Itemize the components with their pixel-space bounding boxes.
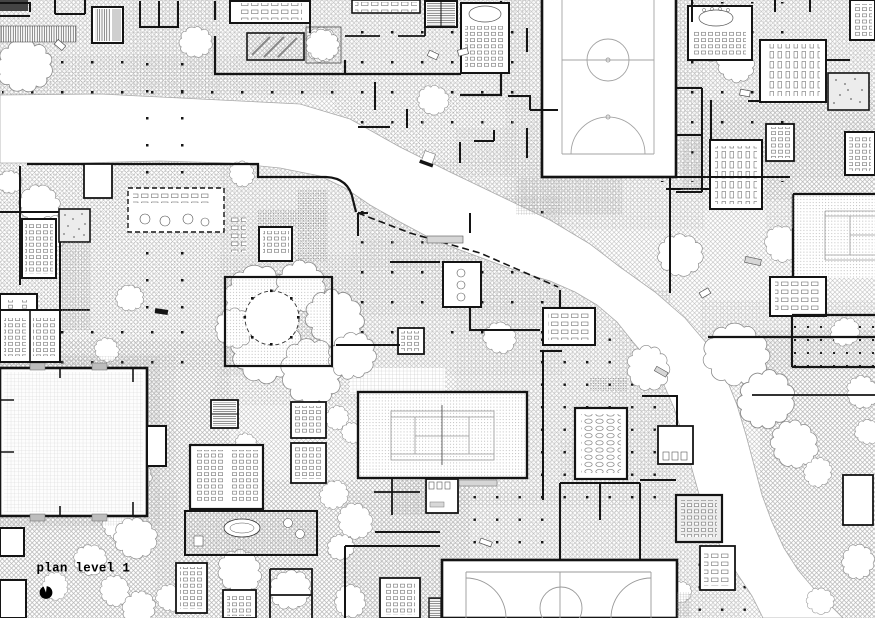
svg-text:plan level 1: plan level 1 — [37, 562, 131, 576]
